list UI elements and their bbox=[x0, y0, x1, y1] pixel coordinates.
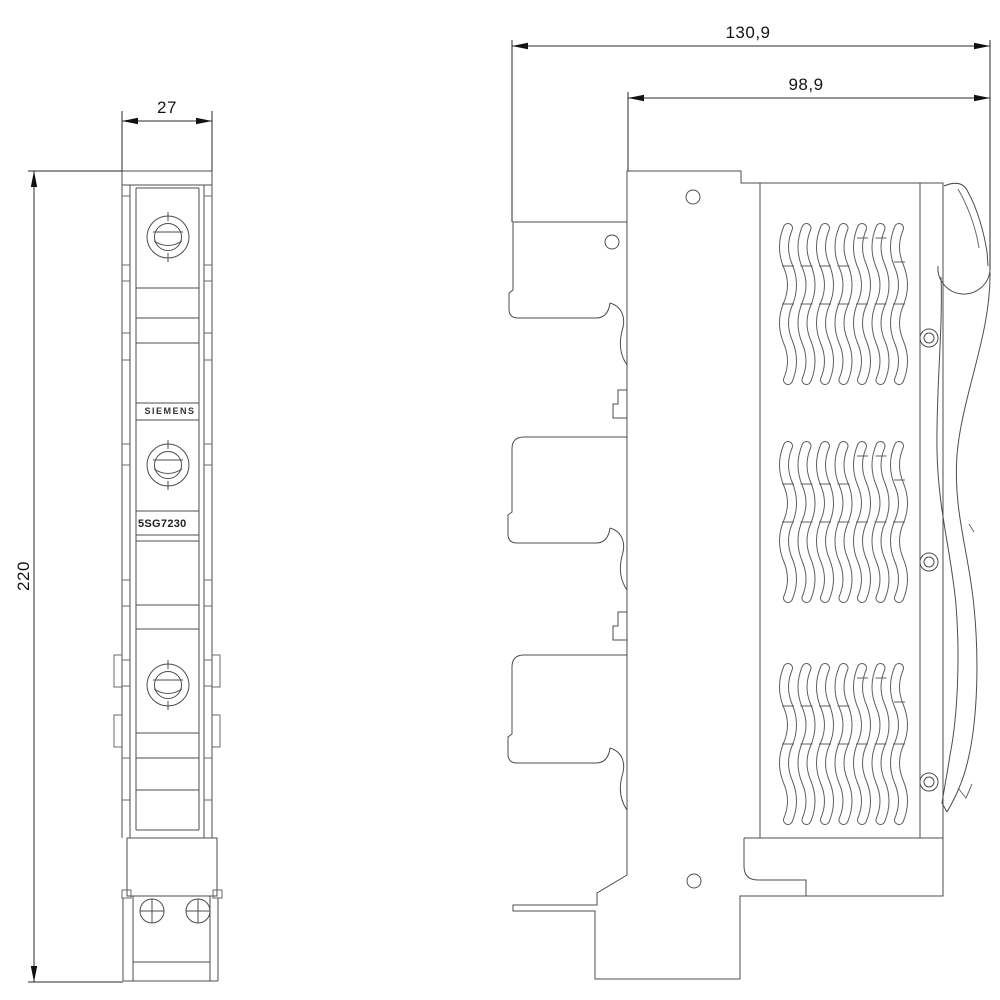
fuse-screw-bottom bbox=[147, 660, 189, 710]
dimension-depth-front-98-9: 98,9 bbox=[628, 75, 990, 171]
cover-screw-middle bbox=[920, 553, 938, 571]
front-view: SIEMENS 5SG7230 bbox=[114, 171, 222, 981]
terminal-block-1 bbox=[509, 222, 627, 318]
front-center-column bbox=[136, 188, 199, 830]
brand-label: SIEMENS bbox=[144, 406, 195, 416]
dimension-width-27: 27 bbox=[122, 98, 212, 171]
vent-group-middle bbox=[782, 446, 905, 598]
technical-drawing-canvas: SIEMENS 5SG7230 27 220 bbox=[0, 0, 1000, 1000]
terminal-block-2 bbox=[508, 437, 627, 543]
mount-hole-bottom bbox=[687, 874, 701, 888]
vent-group-bottom bbox=[782, 668, 905, 820]
front-module-dividers bbox=[136, 188, 199, 830]
dim-depth-total-value: 130,9 bbox=[725, 23, 770, 42]
terminal-block-3 bbox=[508, 655, 627, 763]
terminal-claw-3 bbox=[610, 748, 627, 810]
fuse-screw-top bbox=[147, 212, 189, 262]
mount-hole-top bbox=[686, 190, 700, 204]
front-bottom-assembly bbox=[122, 838, 222, 981]
dimension-depth-total-130-9: 130,9 bbox=[512, 23, 990, 270]
cover-screw-top bbox=[920, 329, 938, 347]
dim-depth-front-value: 98,9 bbox=[788, 75, 823, 94]
operating-handle bbox=[937, 183, 990, 812]
dim-height-value: 220 bbox=[14, 561, 33, 591]
cover-screw-bottom bbox=[920, 773, 938, 791]
terminal-claw-2 bbox=[610, 528, 627, 590]
front-foot-outline bbox=[123, 896, 218, 981]
phillips-screw-left bbox=[140, 899, 164, 923]
teeth-gap-2 bbox=[613, 612, 627, 640]
vent-group-top bbox=[782, 228, 905, 380]
side-view bbox=[508, 171, 990, 979]
dimension-height-220: 220 bbox=[14, 171, 123, 982]
teeth-gap-1 bbox=[613, 390, 627, 418]
terminal-claw-1 bbox=[610, 303, 627, 365]
product-code-label: 5SG7230 bbox=[138, 518, 187, 530]
phillips-screw-right bbox=[186, 899, 210, 923]
drawing-svg: SIEMENS 5SG7230 27 220 bbox=[0, 0, 1000, 1000]
side-outline bbox=[513, 171, 943, 979]
dim-width-value: 27 bbox=[157, 98, 177, 117]
mount-hole-left bbox=[605, 235, 619, 249]
fuse-screw-middle bbox=[147, 440, 189, 490]
